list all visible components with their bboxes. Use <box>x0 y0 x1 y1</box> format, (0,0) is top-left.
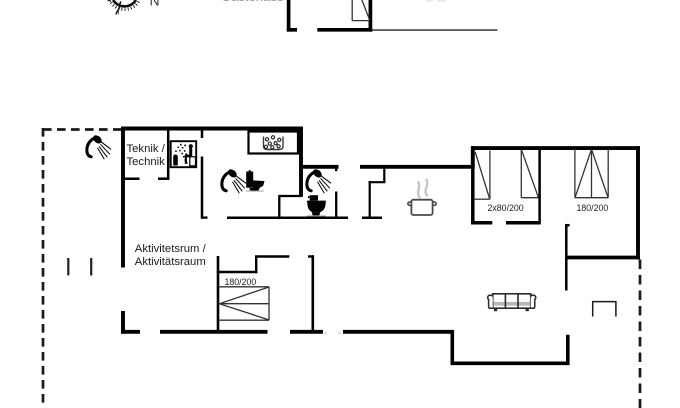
svg-text:N: N <box>150 0 160 9</box>
svg-text:Teknik /: Teknik / <box>127 143 166 155</box>
svg-text:2x80/200: 2x80/200 <box>488 203 524 213</box>
svg-text:180/200: 180/200 <box>577 203 609 213</box>
svg-text:Gästehaus: Gästehaus <box>221 0 284 4</box>
svg-text:Aktivitätsraum: Aktivitätsraum <box>135 256 206 268</box>
svg-text:Technik: Technik <box>127 156 166 168</box>
svg-text:Aktivitetsrum /: Aktivitetsrum / <box>135 243 207 255</box>
svg-text:180/200: 180/200 <box>225 277 257 287</box>
